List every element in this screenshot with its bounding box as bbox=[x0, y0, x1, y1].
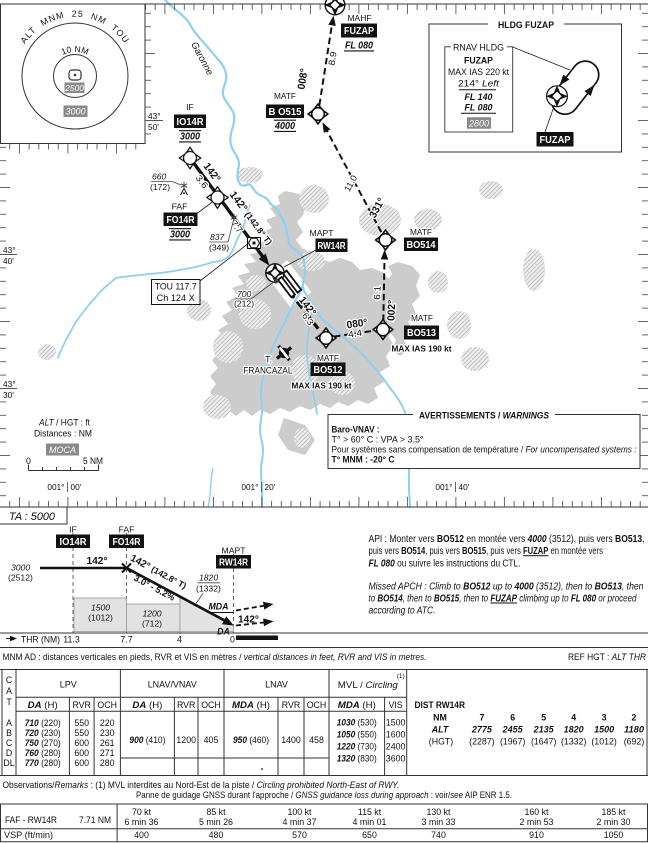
svg-text:C: C bbox=[6, 738, 13, 748]
svg-text:MATF: MATF bbox=[317, 353, 339, 363]
svg-text:MAPT: MAPT bbox=[222, 546, 247, 556]
svg-text:BO513: BO513 bbox=[407, 328, 436, 339]
svg-text:Pour systèmes sans compensatio: Pour systèmes sans compensation de tempé… bbox=[332, 445, 637, 455]
svg-text:FL 080: FL 080 bbox=[465, 103, 494, 113]
svg-text:IF: IF bbox=[186, 102, 194, 112]
svg-text:700: 700 bbox=[237, 289, 252, 299]
svg-text:2775: 2775 bbox=[471, 725, 492, 735]
svg-text:ALT: ALT bbox=[431, 725, 449, 735]
svg-text:115 kt: 115 kt bbox=[358, 807, 382, 817]
svg-text:480: 480 bbox=[209, 830, 224, 840]
svg-text:2: 2 bbox=[632, 713, 637, 723]
svg-text:IO14R: IO14R bbox=[177, 117, 205, 128]
svg-text:1400: 1400 bbox=[281, 735, 301, 745]
svg-text:RVR: RVR bbox=[282, 700, 300, 710]
svg-text:570: 570 bbox=[292, 830, 307, 840]
svg-text:DA (H): DA (H) bbox=[132, 700, 162, 710]
svg-text:FAF - RW14R: FAF - RW14R bbox=[5, 815, 57, 825]
svg-text:Ch 124 X: Ch 124 X bbox=[157, 293, 195, 303]
svg-text:1820: 1820 bbox=[564, 725, 584, 735]
svg-text:458: 458 bbox=[309, 735, 324, 745]
svg-text:6 min 36: 6 min 36 bbox=[125, 817, 159, 827]
svg-text:720 (230): 720 (230) bbox=[25, 728, 61, 738]
svg-text:T° MNM : -20° C: T° MNM : -20° C bbox=[332, 455, 395, 465]
svg-text:RVR: RVR bbox=[177, 700, 195, 710]
svg-text:220: 220 bbox=[100, 718, 115, 728]
svg-text:RW14R: RW14R bbox=[318, 241, 347, 252]
svg-text:(1332): (1332) bbox=[196, 584, 221, 594]
svg-text:40': 40' bbox=[3, 256, 14, 266]
svg-text:0: 0 bbox=[26, 456, 31, 466]
svg-text:2400: 2400 bbox=[386, 742, 406, 752]
svg-text:405: 405 bbox=[204, 735, 219, 745]
svg-text:FL 080 ou suivre les instructi: FL 080 ou suivre les instructions du CTL… bbox=[369, 558, 521, 569]
svg-text:RW14R: RW14R bbox=[219, 557, 249, 568]
svg-text:002°: 002° bbox=[385, 300, 398, 321]
svg-text:1600: 1600 bbox=[386, 730, 406, 740]
svg-text:MDA: MDA bbox=[209, 602, 229, 612]
svg-text:11.3: 11.3 bbox=[63, 635, 80, 645]
svg-text:950 (460): 950 (460) bbox=[233, 735, 269, 745]
svg-text:MATF: MATF bbox=[410, 227, 432, 237]
svg-text:T: T bbox=[6, 697, 12, 707]
svg-text:1200: 1200 bbox=[142, 609, 161, 619]
svg-text:MAX IAS 220 kt: MAX IAS 220 kt bbox=[448, 67, 510, 77]
svg-text:VSP (ft/min): VSP (ft/min) bbox=[4, 830, 53, 840]
svg-text:Panne de guidage GNSS durant l: Panne de guidage GNSS durant l'approche … bbox=[136, 790, 512, 800]
svg-text:100 kt: 100 kt bbox=[288, 807, 313, 817]
svg-text:4: 4 bbox=[177, 635, 182, 645]
svg-text:600: 600 bbox=[74, 738, 89, 748]
svg-text:FUZAP: FUZAP bbox=[344, 26, 374, 37]
svg-text:(349): (349) bbox=[209, 243, 229, 253]
svg-text:50': 50' bbox=[148, 122, 159, 132]
svg-text:43°: 43° bbox=[3, 245, 16, 255]
svg-text:(1): (1) bbox=[397, 673, 405, 680]
svg-text:1180: 1180 bbox=[624, 725, 644, 735]
svg-text:280: 280 bbox=[100, 758, 115, 768]
svg-text:760 (280): 760 (280) bbox=[25, 748, 61, 758]
svg-text:1320 (830): 1320 (830) bbox=[337, 754, 377, 764]
svg-text:660: 660 bbox=[152, 172, 167, 182]
svg-text:5 min 26: 5 min 26 bbox=[199, 817, 233, 827]
svg-text:MVL / Circling: MVL / Circling bbox=[338, 680, 398, 690]
svg-text:MDA (H): MDA (H) bbox=[338, 700, 376, 710]
svg-text:2 min 30: 2 min 30 bbox=[597, 817, 631, 827]
svg-text:RNAV HLDG: RNAV HLDG bbox=[453, 43, 504, 53]
svg-text:FUZAP: FUZAP bbox=[540, 135, 571, 146]
svg-text:1050 (550): 1050 (550) bbox=[337, 730, 377, 740]
svg-text:30': 30' bbox=[3, 390, 14, 400]
svg-text:AVERTISSEMENTS / WARNINGS: AVERTISSEMENTS / WARNINGS bbox=[419, 411, 550, 421]
svg-text:2800: 2800 bbox=[468, 119, 489, 129]
svg-text:001°: 001° bbox=[47, 482, 64, 492]
svg-text:3000: 3000 bbox=[170, 230, 190, 241]
svg-text:142°: 142° bbox=[87, 556, 108, 567]
svg-text:(2512): (2512) bbox=[8, 573, 33, 583]
svg-text:FRANCAZAL: FRANCAZAL bbox=[244, 366, 293, 376]
svg-text:130 kt: 130 kt bbox=[427, 807, 452, 817]
svg-text:3000: 3000 bbox=[180, 132, 200, 143]
svg-text:160 kt: 160 kt bbox=[525, 807, 550, 817]
svg-text:(172): (172) bbox=[150, 182, 170, 192]
svg-text:(2287): (2287) bbox=[469, 737, 494, 747]
svg-text:LNAV/VNAV: LNAV/VNAV bbox=[148, 680, 197, 690]
svg-text:40': 40' bbox=[459, 482, 470, 492]
svg-text:HLDG FUZAP: HLDG FUZAP bbox=[498, 20, 554, 30]
svg-text:(1332): (1332) bbox=[561, 737, 586, 747]
svg-text:OCH: OCH bbox=[201, 700, 221, 710]
svg-text:7: 7 bbox=[479, 713, 484, 723]
svg-text:1050: 1050 bbox=[604, 830, 624, 840]
svg-text:A: A bbox=[6, 718, 12, 728]
svg-text:85 kt: 85 kt bbox=[206, 807, 226, 817]
svg-text:THR (NM): THR (NM) bbox=[21, 635, 60, 645]
svg-text:LPV: LPV bbox=[60, 680, 77, 690]
svg-text:FAF: FAF bbox=[119, 525, 135, 535]
svg-text:IO14R: IO14R bbox=[60, 537, 88, 548]
svg-text:(HGT): (HGT) bbox=[429, 737, 453, 747]
svg-text:MDA (H): MDA (H) bbox=[232, 700, 270, 710]
svg-text:DIST RW14R: DIST RW14R bbox=[415, 700, 466, 710]
svg-text:DA: DA bbox=[217, 627, 230, 637]
svg-text:4 min 01: 4 min 01 bbox=[353, 817, 387, 827]
svg-text:LNAV: LNAV bbox=[265, 680, 288, 690]
svg-text:B O515: B O515 bbox=[269, 107, 302, 118]
svg-text:D: D bbox=[6, 748, 12, 758]
svg-text:1200: 1200 bbox=[176, 735, 196, 745]
svg-text:3: 3 bbox=[602, 713, 607, 723]
svg-text:VIS: VIS bbox=[389, 700, 403, 710]
svg-text:4: 4 bbox=[571, 713, 576, 723]
svg-text:3 min 33: 3 min 33 bbox=[422, 817, 456, 827]
svg-text:550: 550 bbox=[74, 728, 89, 738]
svg-text:TOU 117.7: TOU 117.7 bbox=[155, 282, 197, 292]
svg-text:214° Left: 214° Left bbox=[458, 79, 500, 89]
svg-text:910: 910 bbox=[529, 830, 544, 840]
svg-text:T° > 60° C : VPA > 3.5°: T° > 60° C : VPA > 3.5° bbox=[332, 435, 424, 445]
svg-text:MOCA: MOCA bbox=[49, 445, 76, 455]
svg-text:FL 080: FL 080 bbox=[345, 41, 373, 52]
svg-text:550: 550 bbox=[74, 718, 89, 728]
svg-text:2135: 2135 bbox=[533, 725, 554, 735]
svg-text:7.71 NM: 7.71 NM bbox=[79, 815, 111, 825]
svg-text:750 (270): 750 (270) bbox=[25, 738, 61, 748]
svg-text:43°: 43° bbox=[148, 111, 161, 121]
svg-text:to BO514, then to BO515, then: to BO514, then to BO515, then to FUZAP c… bbox=[369, 594, 637, 605]
svg-text:600: 600 bbox=[74, 748, 89, 758]
svg-text:4 min 37: 4 min 37 bbox=[283, 817, 317, 827]
svg-text:TA : 5000: TA : 5000 bbox=[9, 511, 56, 523]
svg-text:6.1: 6.1 bbox=[372, 286, 382, 300]
svg-text:1220 (730): 1220 (730) bbox=[337, 742, 377, 752]
svg-text:REF HGT : ALT THR: REF HGT : ALT THR bbox=[568, 652, 646, 662]
svg-text:2455: 2455 bbox=[502, 725, 523, 735]
svg-text:MAHF: MAHF bbox=[348, 13, 372, 23]
svg-text:BO514: BO514 bbox=[407, 240, 436, 251]
svg-text:Observations/Remarks : (1) MVL: Observations/Remarks : (1) MVL interdite… bbox=[3, 780, 400, 790]
svg-text:3000: 3000 bbox=[65, 107, 85, 117]
svg-text:puis vers BO514, puis vers BO5: puis vers BO514, puis vers BO515, puis v… bbox=[369, 546, 604, 557]
svg-text:600: 600 bbox=[74, 758, 89, 768]
svg-text:001°: 001° bbox=[241, 482, 258, 492]
svg-text:2500: 2500 bbox=[64, 83, 84, 93]
svg-text:770 (280): 770 (280) bbox=[25, 758, 61, 768]
svg-text:A: A bbox=[6, 686, 12, 696]
svg-text:DL: DL bbox=[3, 758, 14, 768]
svg-text:Distances : NM: Distances : NM bbox=[34, 429, 92, 439]
svg-text:according to ATC.: according to ATC. bbox=[369, 606, 436, 617]
svg-text:Missed APCH : Climb to BO512 u: Missed APCH : Climb to BO512 up to 4000 … bbox=[369, 582, 644, 593]
svg-text:IF: IF bbox=[69, 525, 77, 535]
svg-text:MATF: MATF bbox=[274, 91, 296, 101]
svg-text:(212): (212) bbox=[234, 299, 254, 309]
svg-text:NM: NM bbox=[433, 713, 447, 723]
svg-text:43°: 43° bbox=[3, 379, 16, 389]
svg-text:FO14R: FO14R bbox=[167, 215, 196, 226]
svg-text:5 NM: 5 NM bbox=[83, 456, 103, 466]
svg-text:(712): (712) bbox=[142, 619, 162, 629]
svg-text:00': 00' bbox=[71, 482, 82, 492]
svg-text:1500: 1500 bbox=[386, 718, 406, 728]
svg-text:740: 740 bbox=[431, 830, 446, 840]
svg-text:(1647): (1647) bbox=[531, 737, 556, 747]
svg-text:C: C bbox=[6, 675, 13, 685]
svg-text:MAPT: MAPT bbox=[310, 228, 335, 238]
svg-text:(692): (692) bbox=[624, 737, 645, 747]
svg-text:B: B bbox=[6, 728, 12, 738]
svg-text:BO512: BO512 bbox=[314, 365, 343, 376]
svg-text:3000: 3000 bbox=[11, 563, 30, 573]
svg-text:T.: T. bbox=[265, 355, 272, 365]
svg-text:MAX IAS 190 kt: MAX IAS 190 kt bbox=[292, 381, 352, 391]
svg-text:RVR: RVR bbox=[72, 700, 90, 710]
svg-text:6: 6 bbox=[510, 713, 515, 723]
svg-text:1030 (530): 1030 (530) bbox=[337, 718, 377, 728]
svg-text:FL 140: FL 140 bbox=[465, 92, 494, 102]
svg-text:(1967): (1967) bbox=[500, 737, 525, 747]
svg-text:(1012): (1012) bbox=[88, 613, 113, 623]
svg-text:001°: 001° bbox=[435, 482, 452, 492]
svg-text:2 min 53: 2 min 53 bbox=[520, 817, 554, 827]
svg-text:271: 271 bbox=[100, 748, 115, 758]
svg-text:70 kt: 70 kt bbox=[132, 807, 152, 817]
svg-text:FO14R: FO14R bbox=[113, 537, 142, 548]
svg-text:230: 230 bbox=[100, 728, 115, 738]
svg-text:OCH: OCH bbox=[97, 700, 117, 710]
svg-text:MNM AD : distances verticales: MNM AD : distances verticales en pieds, … bbox=[3, 652, 427, 662]
svg-text:900 (410): 900 (410) bbox=[129, 735, 165, 745]
svg-text:7.7: 7.7 bbox=[120, 635, 132, 645]
svg-text:DA (H): DA (H) bbox=[28, 700, 58, 710]
svg-text:4000: 4000 bbox=[274, 121, 295, 132]
svg-text:5: 5 bbox=[541, 713, 546, 723]
svg-text:ALT / HGT : ft: ALT / HGT : ft bbox=[38, 418, 90, 428]
svg-text:1500: 1500 bbox=[594, 725, 614, 735]
svg-text:FUZAP: FUZAP bbox=[464, 56, 493, 66]
svg-text:MATF: MATF bbox=[411, 313, 433, 323]
svg-text:MAX IAS 190 kt: MAX IAS 190 kt bbox=[392, 344, 452, 354]
svg-text:FAF: FAF bbox=[172, 202, 188, 212]
svg-text:710 (220): 710 (220) bbox=[25, 718, 61, 728]
svg-text:400: 400 bbox=[134, 830, 149, 840]
svg-text:(1012): (1012) bbox=[591, 737, 616, 747]
svg-text:650: 650 bbox=[362, 830, 377, 840]
svg-text:1500: 1500 bbox=[91, 603, 110, 613]
svg-text:20': 20' bbox=[265, 482, 276, 492]
svg-text:185 kt: 185 kt bbox=[602, 807, 627, 817]
svg-text:API : Monter vers BO512 en mon: API : Monter vers BO512 en montée vers 4… bbox=[369, 534, 645, 545]
svg-text:Baro-VNAV :: Baro-VNAV : bbox=[332, 425, 380, 435]
svg-text:3600: 3600 bbox=[386, 754, 406, 764]
svg-text:0: 0 bbox=[230, 635, 235, 645]
svg-text:OCH: OCH bbox=[307, 700, 327, 710]
svg-text:4.4: 4.4 bbox=[347, 328, 362, 340]
svg-text:837: 837 bbox=[210, 232, 226, 242]
svg-text:261: 261 bbox=[100, 738, 115, 748]
svg-text:1820: 1820 bbox=[199, 573, 218, 583]
